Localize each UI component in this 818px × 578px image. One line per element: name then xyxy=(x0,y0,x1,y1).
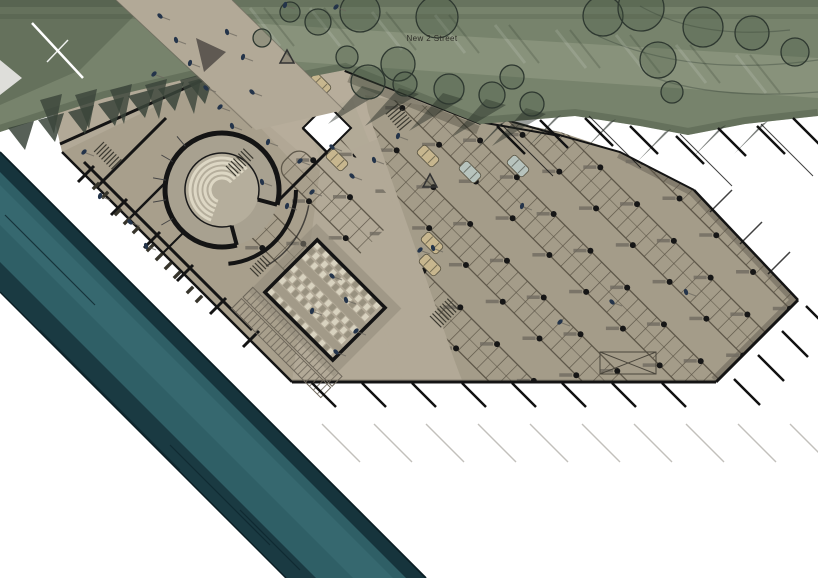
column xyxy=(554,415,574,421)
column-dot xyxy=(520,132,526,138)
stall-line xyxy=(540,503,563,526)
tree-canopy xyxy=(735,16,769,50)
stall-line xyxy=(624,493,647,516)
column-shadow xyxy=(637,406,650,410)
boundary-tick xyxy=(512,383,536,407)
column-dot xyxy=(651,405,657,411)
column-shadow xyxy=(544,499,557,503)
column-shadow xyxy=(777,266,790,270)
column xyxy=(814,302,818,308)
column-dot xyxy=(750,269,756,275)
column-shadow xyxy=(674,443,687,447)
stall-line xyxy=(605,475,628,498)
column-shadow xyxy=(532,253,545,257)
column xyxy=(596,409,616,415)
column-shadow xyxy=(667,155,680,159)
column-dot xyxy=(521,461,527,467)
stall-line xyxy=(568,438,591,461)
column-shadow xyxy=(549,457,562,461)
column-shadow xyxy=(579,206,592,210)
stall-line xyxy=(568,531,591,554)
stall-line xyxy=(549,512,572,535)
column-shadow xyxy=(466,467,479,471)
column-dot xyxy=(306,198,312,204)
column xyxy=(580,535,600,541)
tree-canopy xyxy=(305,9,331,35)
tree-canopy xyxy=(336,46,358,68)
column-dot xyxy=(718,191,724,197)
column-shadow xyxy=(559,373,572,377)
ghost-ticks xyxy=(322,424,818,462)
bench xyxy=(186,286,195,295)
tree-canopy xyxy=(479,82,505,108)
column-shadow xyxy=(620,202,633,206)
column-dot xyxy=(436,142,442,148)
column-shadow xyxy=(653,280,666,284)
column-shadow xyxy=(507,462,520,466)
column-shadow xyxy=(496,216,509,220)
bench xyxy=(164,262,173,271)
tree-canopy xyxy=(781,38,809,66)
ghost-tick xyxy=(478,424,516,462)
column-dot xyxy=(708,275,714,281)
column-dot xyxy=(394,147,400,153)
bench-rect xyxy=(155,253,164,262)
stall-line xyxy=(652,428,675,451)
ghost-tick xyxy=(374,424,412,462)
column-dot xyxy=(630,242,636,248)
column-dot xyxy=(343,235,349,241)
stall-line xyxy=(476,439,499,462)
stall-line xyxy=(624,401,647,424)
column-dot xyxy=(463,262,469,268)
column-shadow xyxy=(463,138,476,142)
stall-line xyxy=(634,410,657,433)
column-dot xyxy=(620,326,626,332)
tree-canopy xyxy=(434,74,464,104)
column-dot xyxy=(713,232,719,238)
edge-spike xyxy=(637,129,671,162)
column-dot xyxy=(600,492,606,498)
column-dot xyxy=(634,201,640,207)
stall-line xyxy=(643,419,666,442)
column-dot xyxy=(494,341,500,347)
column-shadow xyxy=(449,263,462,267)
column xyxy=(507,461,527,467)
column-dot xyxy=(527,419,533,425)
column-shadow xyxy=(763,390,776,394)
ghost-tick xyxy=(738,424,776,462)
column-shadow xyxy=(814,303,818,307)
column xyxy=(637,405,657,411)
column-dot xyxy=(688,442,694,448)
column-shadow xyxy=(623,530,636,534)
column-shadow xyxy=(684,359,697,363)
column-shadow xyxy=(699,233,712,237)
column-shadow xyxy=(554,416,567,420)
column-dot xyxy=(781,348,787,354)
column xyxy=(777,265,797,271)
column-dot xyxy=(578,331,584,337)
column-dot xyxy=(573,372,579,378)
stall-line xyxy=(596,466,619,489)
column-dot xyxy=(541,294,547,300)
tree-canopy xyxy=(500,65,524,89)
ghost-tick xyxy=(322,424,360,462)
column xyxy=(674,442,694,448)
column-shadow xyxy=(736,270,749,274)
column-dot xyxy=(597,164,603,170)
boundary-tick xyxy=(562,383,586,407)
stall-line xyxy=(661,437,684,460)
column xyxy=(544,498,564,504)
column xyxy=(720,395,740,401)
column-shadow xyxy=(392,393,405,397)
stall-line xyxy=(587,457,610,480)
column-shadow xyxy=(245,246,258,250)
stall-line xyxy=(494,457,517,480)
column-shadow xyxy=(569,290,582,294)
column-dot xyxy=(536,335,542,341)
column-shadow xyxy=(647,322,660,326)
column-shadow xyxy=(476,383,489,387)
boundary-tick xyxy=(740,222,762,244)
column-dot xyxy=(500,299,506,305)
column-shadow xyxy=(333,195,346,199)
boundary-tick xyxy=(710,190,732,212)
stall-line xyxy=(614,484,637,507)
column-shadow xyxy=(586,493,599,497)
stall-line xyxy=(699,382,722,405)
tree-canopy xyxy=(661,81,683,103)
column-shadow xyxy=(539,540,552,544)
column xyxy=(704,191,724,197)
column-dot xyxy=(558,498,564,504)
edge-tick-long xyxy=(680,134,732,186)
tree-canopy xyxy=(351,65,385,99)
boundary-tick xyxy=(412,383,436,407)
column-shadow xyxy=(689,317,702,321)
stall-line xyxy=(559,522,582,545)
bench-rect xyxy=(195,295,204,304)
column-dot xyxy=(614,368,620,374)
column-dot xyxy=(703,316,709,322)
edge-tick xyxy=(630,126,658,154)
column-dot xyxy=(671,238,677,244)
column-shadow xyxy=(670,484,683,488)
column-dot xyxy=(568,415,574,421)
column-dot xyxy=(693,399,699,405)
ghost-tick xyxy=(426,424,464,462)
column-dot xyxy=(677,195,683,201)
column-shadow xyxy=(573,249,586,253)
column-shadow xyxy=(773,307,786,311)
column xyxy=(767,348,787,354)
column-dot xyxy=(641,488,647,494)
stall-line xyxy=(663,160,686,183)
tree-canopy xyxy=(393,72,417,96)
column-dot xyxy=(594,535,600,541)
column-dot xyxy=(453,345,459,351)
column-dot xyxy=(484,425,490,431)
stall-line xyxy=(485,448,508,471)
boundary-tick xyxy=(462,383,486,407)
column xyxy=(627,488,647,494)
column-dot xyxy=(791,265,797,271)
column-dot xyxy=(734,395,740,401)
column-shadow xyxy=(583,165,596,169)
column xyxy=(466,466,486,472)
column-dot xyxy=(744,311,750,317)
column-dot xyxy=(657,362,663,368)
column-dot xyxy=(347,194,353,200)
column-dot xyxy=(624,285,630,291)
column xyxy=(667,154,687,160)
column-shadow xyxy=(730,312,743,316)
stall-line xyxy=(670,447,693,470)
column-shadow xyxy=(537,212,550,216)
ghost-tick xyxy=(790,424,818,462)
bench-rect xyxy=(186,286,195,295)
column-shadow xyxy=(500,175,513,179)
ghost-tick xyxy=(530,424,568,462)
column-shadow xyxy=(610,286,623,290)
column-dot xyxy=(684,483,690,489)
column xyxy=(810,343,818,349)
bench xyxy=(195,295,204,304)
column-shadow xyxy=(503,503,516,507)
column-shadow xyxy=(663,196,676,200)
site-plan-drawing: New 2 Street xyxy=(0,0,818,578)
boundary-tick xyxy=(758,355,784,381)
stall-line xyxy=(467,430,490,453)
column-shadow xyxy=(412,226,425,230)
column-shadow xyxy=(433,389,446,393)
stall-line xyxy=(439,402,462,425)
column-dot xyxy=(587,248,593,254)
column xyxy=(539,539,559,545)
boundary-tick xyxy=(362,383,386,407)
column-shadow xyxy=(694,276,707,280)
column-shadow xyxy=(596,410,609,414)
boundary-tick xyxy=(662,383,686,407)
stall-line xyxy=(541,411,564,434)
column-shadow xyxy=(616,243,629,247)
column xyxy=(633,446,653,452)
column-shadow xyxy=(580,536,593,540)
column-shadow xyxy=(720,396,733,400)
edge-tick xyxy=(793,118,818,146)
column-shadow xyxy=(490,259,503,263)
column-shadow xyxy=(564,332,577,336)
column-shadow xyxy=(453,222,466,226)
tree-canopy xyxy=(416,0,458,38)
column-dot xyxy=(610,409,616,415)
stall-line xyxy=(606,382,629,405)
edge-tick xyxy=(718,128,746,156)
column-dot xyxy=(561,128,567,134)
column-shadow xyxy=(643,363,656,367)
column-dot xyxy=(443,429,449,435)
stall-line xyxy=(513,476,536,499)
tree-canopy xyxy=(520,92,544,116)
stall-line xyxy=(615,392,638,415)
column-dot xyxy=(406,392,412,398)
column-dot xyxy=(551,211,557,217)
column-shadow xyxy=(527,295,540,299)
column-shadow xyxy=(704,192,717,196)
column-dot xyxy=(777,389,783,395)
column-dot xyxy=(426,225,432,231)
column-shadow xyxy=(606,327,619,331)
column-dot xyxy=(681,154,687,160)
column-shadow xyxy=(657,239,670,243)
architectural-site-plan: New 2 Street xyxy=(0,0,818,578)
stall-line xyxy=(503,466,526,489)
ghost-tick xyxy=(582,424,620,462)
stall-line xyxy=(577,540,600,563)
column-dot xyxy=(477,137,483,143)
column-shadow xyxy=(810,344,818,348)
column-shadow xyxy=(633,447,646,451)
stall-line xyxy=(531,494,554,517)
tree-canopy xyxy=(583,0,623,36)
column-dot xyxy=(593,205,599,211)
column xyxy=(392,392,412,398)
column xyxy=(433,388,453,394)
column-shadow xyxy=(627,489,640,493)
column xyxy=(503,502,523,508)
boundary-tick xyxy=(768,252,790,274)
column-dot xyxy=(556,169,562,175)
column-dot xyxy=(480,466,486,472)
column-dot xyxy=(698,358,704,364)
stall-line xyxy=(708,391,731,414)
boundary-tick xyxy=(806,306,818,332)
column-dot xyxy=(730,436,736,442)
column xyxy=(623,529,643,535)
column xyxy=(716,436,736,442)
column-dot xyxy=(667,279,673,285)
column-dot xyxy=(583,289,589,295)
tree-canopy xyxy=(253,29,271,47)
column-shadow xyxy=(513,420,526,424)
boundary-tick xyxy=(734,379,760,405)
street-label: New 2 Street xyxy=(406,34,457,43)
column-dot xyxy=(504,258,510,264)
bench xyxy=(155,253,164,262)
column-dot xyxy=(661,321,667,327)
column-dot xyxy=(467,221,473,227)
ghost-tick xyxy=(686,424,724,462)
column-dot xyxy=(553,539,559,545)
column-dot xyxy=(637,529,643,535)
column-shadow xyxy=(716,437,729,441)
stall-line xyxy=(448,411,471,434)
stall-line xyxy=(717,400,740,423)
column-shadow xyxy=(767,349,780,353)
column-dot xyxy=(647,446,653,452)
stall-line xyxy=(578,447,601,470)
column-dot xyxy=(447,388,453,394)
column-shadow xyxy=(590,452,603,456)
ghost-tick xyxy=(634,424,672,462)
column-dot xyxy=(517,502,523,508)
column-shadow xyxy=(486,300,499,304)
edge-tick xyxy=(757,126,785,154)
column xyxy=(513,419,533,425)
tree-canopy xyxy=(683,7,723,47)
stall-line xyxy=(522,485,545,508)
bench-rect xyxy=(164,262,173,271)
stall-line xyxy=(559,429,582,452)
tree-canopy xyxy=(640,42,676,78)
stall-line xyxy=(550,420,573,443)
column xyxy=(763,389,783,395)
column xyxy=(586,492,606,498)
column-dot xyxy=(510,215,516,221)
column-dot xyxy=(546,252,552,258)
column-shadow xyxy=(726,353,739,357)
column xyxy=(670,483,690,489)
column xyxy=(590,451,610,457)
boundary-tick xyxy=(782,331,808,357)
column-shadow xyxy=(522,336,535,340)
stall-line xyxy=(457,421,480,444)
boundary-tick xyxy=(612,383,636,407)
column-shadow xyxy=(480,342,493,346)
